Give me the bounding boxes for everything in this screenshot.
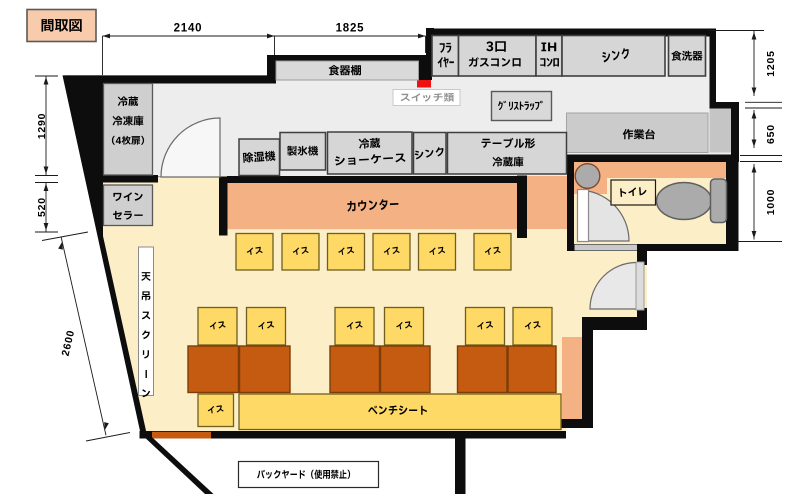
svg-text:1290: 1290: [36, 113, 48, 140]
svg-text:650: 650: [765, 124, 777, 144]
svg-text:1825: 1825: [336, 23, 365, 35]
svg-text:520: 520: [36, 197, 48, 217]
svg-text:2140: 2140: [174, 23, 203, 35]
svg-text:1205: 1205: [765, 50, 777, 77]
svg-text:2600: 2600: [60, 329, 78, 358]
svg-text:1000: 1000: [765, 189, 777, 216]
